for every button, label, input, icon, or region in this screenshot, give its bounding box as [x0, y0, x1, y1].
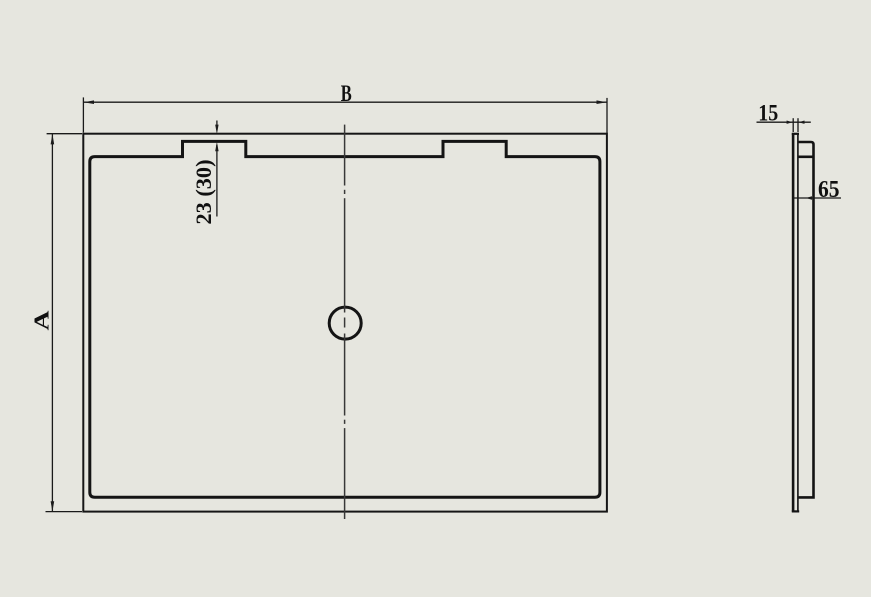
svg-text:15: 15: [758, 101, 778, 126]
svg-text:65: 65: [818, 177, 840, 203]
svg-text:A: A: [30, 309, 54, 330]
svg-text:B: B: [341, 81, 352, 106]
svg-text:23 (30): 23 (30): [191, 160, 216, 225]
